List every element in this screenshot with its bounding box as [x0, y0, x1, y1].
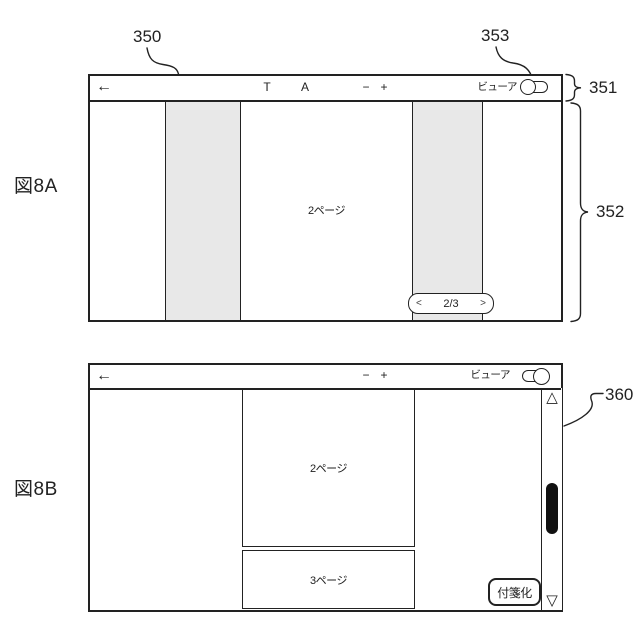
- page-2-box: 2ページ: [242, 388, 415, 547]
- viewer-a-window: ← T A − + ビューア 2ページ < 2/3 >: [88, 74, 563, 322]
- brace-351: [566, 75, 581, 102]
- back-icon[interactable]: ←: [96, 365, 112, 386]
- scroll-up-icon[interactable]: △: [542, 390, 562, 405]
- ref-353: 353: [481, 26, 509, 46]
- page-2-label: 2ページ: [310, 460, 347, 476]
- page-indicator-value: 2/3: [443, 298, 458, 310]
- page-2-label: 2ページ: [308, 202, 345, 218]
- scrollbar-thumb[interactable]: [546, 483, 558, 534]
- scroll-down-icon[interactable]: ▽: [542, 593, 562, 608]
- sticky-note-button-label: 付箋化: [497, 584, 532, 601]
- page-indicator-pill[interactable]: < 2/3 >: [408, 293, 494, 314]
- ref-350: 350: [133, 27, 161, 47]
- leader-line-350: [147, 48, 179, 74]
- page-margin-shade-right: [412, 100, 483, 320]
- viewer-mode-toggle-off[interactable]: [520, 78, 549, 96]
- ref-351: 351: [589, 78, 617, 98]
- ref-360: 360: [605, 385, 633, 405]
- viewer-mode-label: ビューア: [477, 76, 517, 98]
- page-3-box: 3ページ: [242, 550, 415, 609]
- zoom-in-button[interactable]: +: [380, 76, 387, 98]
- text-tool-button[interactable]: T: [263, 76, 270, 98]
- prev-page-icon[interactable]: <: [416, 298, 422, 309]
- next-page-icon[interactable]: >: [480, 298, 486, 309]
- patent-figure-canvas: 図8A 図8B 350 353 351 352 360 361 ← T A − …: [0, 0, 640, 640]
- leader-line-360: [564, 394, 603, 427]
- zoom-out-button[interactable]: −: [362, 365, 369, 386]
- font-tool-button[interactable]: A: [301, 76, 309, 98]
- viewer-a-toolbar: ← T A − + ビューア: [90, 76, 561, 102]
- page-2-area: 2ページ: [241, 100, 412, 320]
- viewer-mode-toggle-on[interactable]: [520, 367, 551, 385]
- viewer-b-window: ← − + ビューア 2ページ 3ページ △ ▽ 付箋化: [88, 363, 563, 612]
- scrollbar[interactable]: △ ▽: [541, 388, 562, 610]
- zoom-in-button[interactable]: +: [380, 365, 387, 386]
- brace-352: [571, 103, 588, 322]
- ref-352: 352: [596, 202, 624, 222]
- figure-b-caption: 図8B: [14, 474, 58, 501]
- figure-a-caption: 図8A: [14, 171, 58, 198]
- toggle-knob: [533, 368, 550, 385]
- page-margin-shade-left: [165, 100, 241, 320]
- sticky-note-button[interactable]: 付箋化: [488, 578, 541, 606]
- viewer-mode-label: ビューア: [470, 365, 510, 386]
- viewer-b-toolbar: ← − + ビューア: [90, 365, 561, 390]
- zoom-out-button[interactable]: −: [362, 76, 369, 98]
- toggle-knob: [520, 79, 536, 95]
- page-3-label: 3ページ: [310, 572, 347, 588]
- back-icon[interactable]: ←: [96, 76, 112, 98]
